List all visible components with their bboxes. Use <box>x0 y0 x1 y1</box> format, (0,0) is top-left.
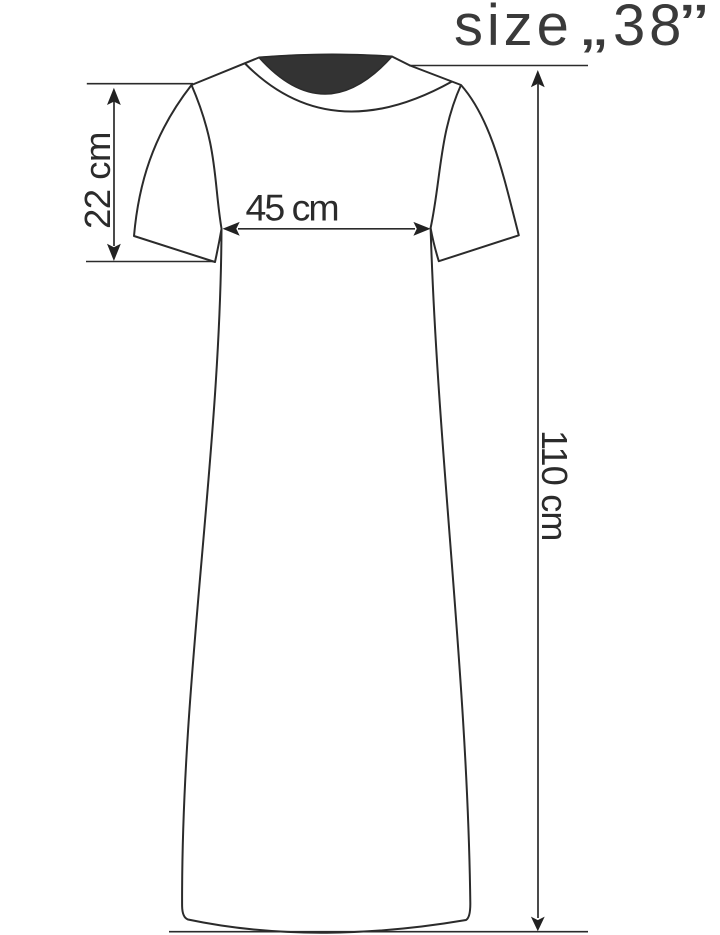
svg-text:size: size <box>454 0 573 58</box>
svg-text:45 cm: 45 cm <box>246 187 338 229</box>
svg-text:38: 38 <box>613 0 685 58</box>
svg-text:„: „ <box>581 0 607 58</box>
svg-text:110 cm: 110 cm <box>534 430 575 541</box>
svg-text:”: ” <box>680 0 708 58</box>
svg-text:22 cm: 22 cm <box>77 132 118 229</box>
